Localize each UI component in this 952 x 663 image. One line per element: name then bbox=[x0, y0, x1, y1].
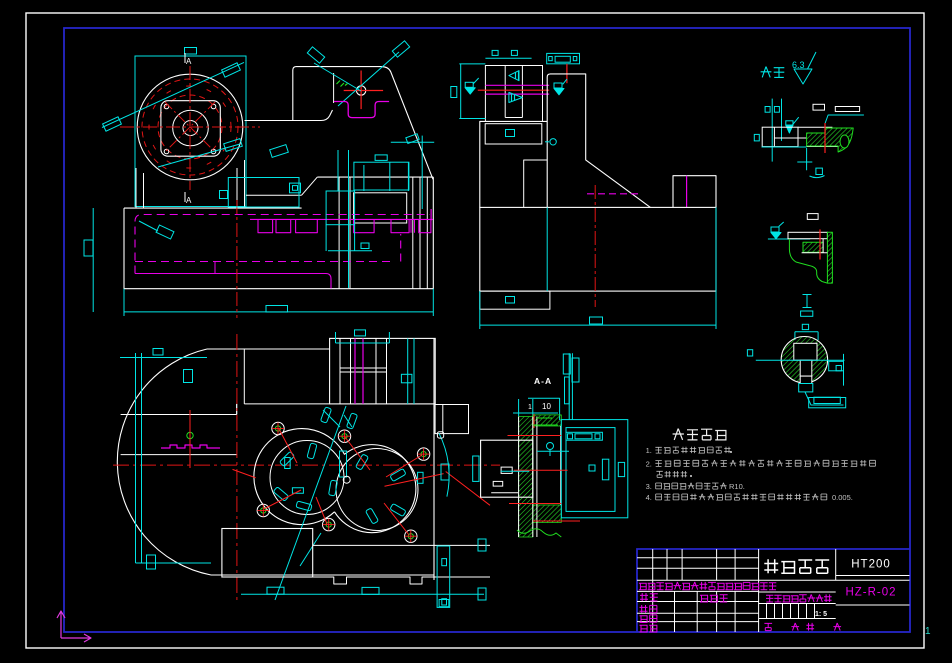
svg-text:1: 1 bbox=[925, 626, 931, 637]
svg-text:1: 5: 1: 5 bbox=[815, 611, 827, 618]
svg-text:2.: 2. bbox=[646, 459, 652, 468]
svg-text:HZ-R-02: HZ-R-02 bbox=[845, 587, 896, 599]
svg-text:A-A: A-A bbox=[534, 376, 552, 386]
svg-text:R10.: R10. bbox=[729, 482, 745, 491]
svg-text:A: A bbox=[186, 196, 192, 205]
svg-text:1.: 1. bbox=[646, 446, 652, 455]
svg-text:A: A bbox=[186, 57, 192, 66]
svg-text:4.: 4. bbox=[646, 493, 652, 502]
svg-text:1: 1 bbox=[528, 404, 532, 411]
svg-text:HT200: HT200 bbox=[851, 559, 891, 571]
svg-text:3.: 3. bbox=[646, 482, 652, 491]
svg-text:0.005.: 0.005. bbox=[832, 493, 853, 502]
svg-text:10: 10 bbox=[542, 402, 551, 411]
